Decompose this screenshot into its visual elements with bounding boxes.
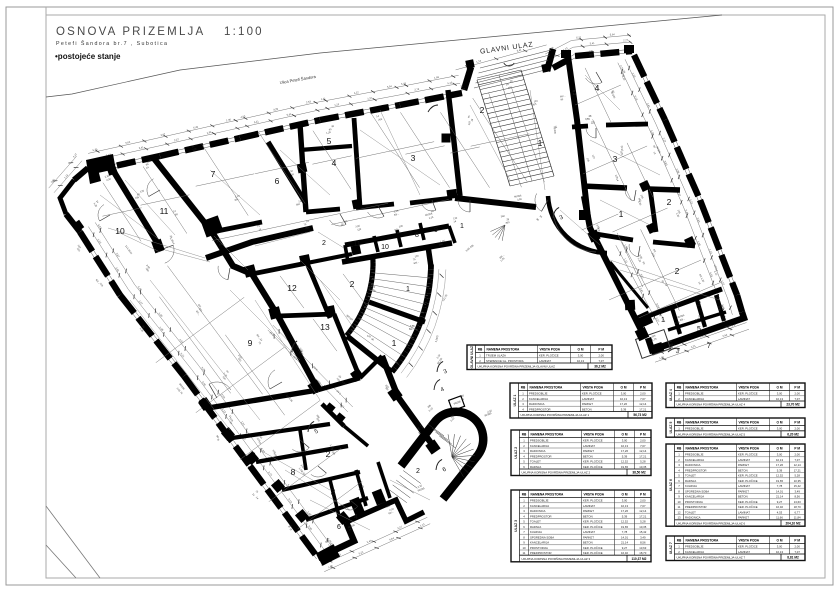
svg-text:6: 6 [722, 316, 726, 323]
svg-text:BETON: BETON [583, 514, 593, 518]
svg-text:16,40: 16,40 [776, 505, 783, 509]
svg-text:3,00: 3,00 [621, 392, 627, 396]
svg-text:P M: P M [794, 538, 800, 542]
svg-text:2: 2 [675, 266, 680, 276]
svg-text:18,70: 18,70 [794, 505, 801, 509]
svg-text:LAMINAT: LAMINAT [539, 359, 551, 363]
svg-text:3,00: 3,00 [622, 499, 628, 503]
svg-text:15,42: 15,42 [639, 530, 646, 534]
svg-text:13,63: 13,63 [794, 500, 801, 504]
svg-text:RB: RB [522, 492, 527, 496]
svg-text:7: 7 [707, 343, 711, 350]
svg-text:VRSTA PODA: VRSTA PODA [584, 432, 605, 436]
svg-text:KANCELARIJA: KANCELARIJA [685, 495, 704, 499]
svg-text:NAMENA PROSTORA: NAMENA PROSTORA [531, 432, 564, 436]
svg-text:NAMENA PROSTORA: NAMENA PROSTORA [531, 492, 564, 496]
svg-text:12,52: 12,52 [621, 460, 628, 464]
svg-text:2: 2 [326, 449, 331, 459]
svg-text:7,07: 7,07 [794, 550, 800, 554]
svg-text:ULAZ 2: ULAZ 2 [514, 447, 518, 459]
svg-text:PREDSOBLJE: PREDSOBLJE [685, 453, 704, 457]
svg-text:P M: P M [794, 385, 800, 389]
svg-text:2,00: 2,00 [640, 439, 646, 443]
svg-text:7,07: 7,07 [794, 458, 800, 462]
svg-text:NAMENA PROSTORA: NAMENA PROSTORA [686, 538, 719, 542]
svg-text:LAMINAT: LAMINAT [582, 397, 594, 401]
svg-text:2,00: 2,00 [640, 499, 646, 503]
svg-text:10: 10 [677, 500, 681, 504]
svg-text:ULAZ 1: ULAZ 1 [513, 394, 517, 406]
svg-text:18,70: 18,70 [639, 551, 646, 555]
svg-text:KANCELARIJA: KANCELARIJA [685, 550, 704, 554]
svg-text:13: 13 [320, 322, 330, 332]
svg-text:1:100: 1:100 [224, 26, 264, 38]
svg-text:VRSTA PODA: VRSTA PODA [584, 492, 605, 496]
svg-text:2: 2 [416, 468, 420, 475]
svg-text:21,14: 21,14 [776, 495, 783, 499]
svg-text:5,28: 5,28 [640, 520, 646, 524]
svg-text:LAMINAT: LAMINAT [738, 397, 750, 401]
svg-text:7,07: 7,07 [794, 397, 800, 401]
svg-text:2: 2 [667, 197, 672, 207]
svg-text:4,53: 4,53 [777, 510, 783, 514]
svg-text:10,13: 10,13 [621, 504, 628, 508]
svg-text:KER. PLOČICE: KER. PLOČICE [738, 499, 758, 504]
svg-text:12,52: 12,52 [776, 474, 783, 478]
svg-text:13,63: 13,63 [639, 546, 646, 550]
svg-text:10: 10 [522, 546, 526, 550]
svg-text:PARKET: PARKET [738, 463, 749, 467]
svg-text:12: 12 [287, 283, 297, 293]
svg-text:1: 1 [619, 209, 624, 219]
svg-text:12,14: 12,14 [639, 449, 646, 453]
svg-text:9,27: 9,27 [777, 500, 783, 504]
svg-text:3: 3 [697, 301, 701, 308]
svg-text:1: 1 [406, 286, 410, 293]
svg-text:RADNJA: RADNJA [530, 525, 541, 529]
svg-text:PARKET: PARKET [738, 489, 749, 493]
svg-text:VRSTA PODA: VRSTA PODA [583, 385, 604, 389]
svg-text:3,00: 3,00 [622, 439, 628, 443]
svg-text:KANCELARIJA: KANCELARIJA [685, 397, 704, 401]
svg-text:KER. PLOČICE: KER. PLOČICE [738, 504, 758, 509]
svg-text:10,13: 10,13 [621, 444, 628, 448]
svg-text:11: 11 [160, 206, 169, 216]
svg-text:P M: P M [640, 385, 646, 389]
svg-text:VRSTA PODA: VRSTA PODA [739, 538, 760, 542]
svg-text:PREDSOBLJE: PREDSOBLJE [530, 499, 549, 503]
svg-text:VRSTA PODA: VRSTA PODA [540, 347, 561, 351]
svg-text:5,28: 5,28 [794, 474, 800, 478]
svg-text:6: 6 [275, 176, 280, 186]
svg-text:KER. PLOČICE: KER. PLOČICE [583, 550, 603, 555]
svg-text:10,35: 10,35 [639, 465, 646, 469]
svg-text:16,40: 16,40 [621, 551, 628, 555]
svg-text:9,27: 9,27 [622, 546, 628, 550]
svg-text:BETON: BETON [583, 454, 593, 458]
svg-text:BETON: BETON [582, 407, 592, 411]
svg-text:5,21: 5,21 [576, 36, 582, 39]
svg-text:TOALET: TOALET [530, 460, 541, 464]
svg-text:17,21: 17,21 [639, 514, 646, 518]
svg-text:1: 1 [460, 223, 464, 230]
svg-text:56,73 M2: 56,73 M2 [633, 413, 647, 417]
svg-text:4: 4 [354, 514, 358, 521]
svg-text:O M: O M [577, 347, 583, 351]
svg-text:O M: O M [621, 432, 627, 436]
svg-text:5,39: 5,39 [777, 468, 783, 472]
svg-text:PREDPROSTOR: PREDPROSTOR [685, 505, 707, 509]
svg-text:KER. PLOČICE: KER. PLOČICE [583, 519, 603, 524]
svg-text:TRIJEM ULAZA: TRIJEM ULAZA [486, 354, 506, 358]
svg-text:10,13: 10,13 [776, 550, 783, 554]
svg-text:PREDSOBLJE: PREDSOBLJE [685, 545, 704, 549]
svg-text:7,07: 7,07 [640, 397, 646, 401]
svg-text:KER. PLOČICE: KER. PLOČICE [738, 391, 758, 396]
svg-text:13: 13 [677, 516, 681, 520]
svg-text:4: 4 [332, 158, 337, 168]
svg-text:60/...: 60/... [409, 328, 415, 331]
svg-text:10,13: 10,13 [776, 458, 783, 462]
svg-text:11,66: 11,66 [776, 516, 783, 520]
svg-text:3,55: 3,55 [585, 118, 590, 121]
svg-text:10,13: 10,13 [776, 397, 783, 401]
svg-text:ULAZ 3: ULAZ 3 [514, 520, 518, 532]
svg-text:KER. PLOČICE: KER. PLOČICE [583, 464, 603, 469]
svg-text:19,65: 19,65 [621, 525, 628, 529]
svg-text:LAMINAT: LAMINAT [738, 510, 750, 514]
svg-text:5,39: 5,39 [621, 407, 627, 411]
svg-text:12,14: 12,14 [794, 463, 801, 467]
svg-text:17,26: 17,26 [621, 449, 628, 453]
svg-text:3,41: 3,41 [590, 42, 596, 45]
svg-text:7,78: 7,78 [777, 484, 783, 488]
svg-text:110,37 M2: 110,37 M2 [632, 557, 647, 561]
svg-text:KER. PLOČICE: KER. PLOČICE [738, 478, 758, 483]
svg-text:PARKET: PARKET [583, 449, 594, 453]
svg-text:UKUPNA KORISNA POVRŠINA PRIZEM: UKUPNA KORISNA POVRŠINA PRIZEMLJA-ULAZ 3 [522, 556, 591, 561]
svg-text:6,20 M2: 6,20 M2 [787, 432, 799, 436]
svg-text:UKUPNA KORISNA POVRŠINA PRIZEM: UKUPNA KORISNA POVRŠINA PRIZEMLJA-ULAZ 4 [677, 402, 746, 407]
svg-text:KER. PLOČICE: KER. PLOČICE [583, 524, 603, 529]
svg-text:PREDPROSTOR: PREDPROSTOR [529, 407, 551, 411]
svg-text:PREDSOBLJE: PREDSOBLJE [685, 392, 704, 396]
svg-text:KER. PLOČICE: KER. PLOČICE [738, 473, 758, 478]
svg-text:LAMINAT: LAMINAT [738, 458, 750, 462]
svg-text:3: 3 [411, 153, 416, 163]
svg-text:8,56: 8,56 [640, 541, 646, 545]
svg-text:NAMENA PROSTORA: NAMENA PROSTORA [686, 385, 719, 389]
svg-text:NAMENA PROSTORA: NAMENA PROSTORA [686, 420, 719, 424]
svg-text:1: 1 [661, 317, 665, 324]
svg-text:VRSTA PODA: VRSTA PODA [739, 420, 760, 424]
svg-text:36,2 M2: 36,2 M2 [594, 365, 606, 369]
svg-text:5,39: 5,39 [622, 454, 628, 458]
svg-text:O M: O M [621, 492, 627, 496]
svg-text:SPOREDNA SOBA: SPOREDNA SOBA [685, 489, 709, 493]
svg-text:21,14: 21,14 [621, 541, 628, 545]
svg-text:TOALET: TOALET [530, 520, 541, 524]
svg-text:PREDPROSTOR: PREDPROSTOR [685, 468, 707, 472]
svg-text:NAMENA PROSTORA: NAMENA PROSTORA [686, 446, 719, 450]
svg-text:UKUPNA KORISNA POVRŠINA PRIZEM: UKUPNA KORISNA POVRŠINA PRIZEMLJA-ULAZ 7 [677, 555, 746, 560]
svg-text:LAMINAT: LAMINAT [583, 444, 595, 448]
svg-text:RADIONICA: RADIONICA [529, 402, 545, 406]
svg-text:2,00: 2,00 [598, 354, 604, 358]
svg-text:PREDSOBLJE: PREDSOBLJE [530, 439, 549, 443]
svg-text:15,42: 15,42 [794, 484, 801, 488]
svg-text:10,35: 10,35 [794, 479, 801, 483]
svg-text:PREDPROSTOR: PREDPROSTOR [530, 514, 552, 518]
svg-text:120: 120 [591, 121, 596, 124]
svg-text:10,13: 10,13 [620, 397, 627, 401]
svg-text:10,13: 10,13 [577, 359, 584, 363]
svg-text:4: 4 [716, 294, 720, 301]
svg-text:RB: RB [677, 385, 682, 389]
svg-text:PREDPROSTOR: PREDPROSTOR [530, 454, 552, 458]
svg-text:BETON: BETON [583, 541, 593, 545]
svg-text:17,26: 17,26 [776, 463, 783, 467]
svg-text:7,07: 7,07 [598, 359, 604, 363]
svg-text:7: 7 [211, 169, 216, 179]
svg-text:23,70 M2: 23,70 M2 [786, 403, 800, 407]
svg-text:9: 9 [434, 227, 438, 234]
svg-text:O M: O M [620, 385, 626, 389]
svg-text:VRSTA PODA: VRSTA PODA [739, 446, 760, 450]
svg-text:P M: P M [794, 446, 800, 450]
svg-text:10: 10 [115, 226, 125, 236]
svg-text:ULAZ 6: ULAZ 6 [669, 479, 673, 491]
svg-text:LAMINAT: LAMINAT [738, 484, 750, 488]
svg-text:17,26: 17,26 [621, 509, 628, 513]
svg-text:2: 2 [350, 279, 355, 289]
svg-text:17,26: 17,26 [620, 402, 627, 406]
svg-text:RB: RB [677, 538, 682, 542]
svg-text:3: 3 [331, 487, 336, 497]
svg-text:OSNOVA PRIZEMLJA: OSNOVA PRIZEMLJA [56, 26, 205, 38]
svg-text:3: 3 [613, 154, 618, 164]
svg-text:PREDPROSTOR: PREDPROSTOR [530, 551, 552, 555]
svg-text:RB: RB [522, 432, 527, 436]
svg-text:KER. PLOČICE: KER. PLOČICE [738, 452, 758, 457]
svg-text:17,21: 17,21 [794, 468, 801, 472]
svg-text:2,00: 2,00 [794, 545, 800, 549]
svg-text:•postojeće stanje: •postojeće stanje [55, 52, 121, 61]
svg-text:O M: O M [776, 385, 782, 389]
svg-text:1: 1 [538, 138, 543, 148]
svg-text:2: 2 [322, 240, 326, 247]
svg-text:O M: O M [776, 538, 782, 542]
svg-text:5,39: 5,39 [622, 514, 628, 518]
svg-text:BETON: BETON [738, 468, 748, 472]
svg-text:KANCELARIJA: KANCELARIJA [530, 504, 549, 508]
svg-text:STEPENICE GL. PROSTORA: STEPENICE GL. PROSTORA [486, 359, 524, 363]
svg-text:UKUPNA KORISNA POVRŠINA PRIZEM: UKUPNA KORISNA POVRŠINA PRIZEMLJA-ULAZ 1 [521, 412, 590, 417]
svg-text:VRSTA PODA: VRSTA PODA [739, 385, 760, 389]
svg-text:TOALET: TOALET [685, 510, 696, 514]
svg-text:P M: P M [640, 492, 646, 496]
svg-text:3,00: 3,00 [777, 392, 783, 396]
svg-text:11: 11 [678, 505, 681, 509]
svg-text:O M: O M [776, 420, 782, 424]
svg-text:2,00: 2,00 [794, 453, 800, 457]
svg-text:KER. PLOČICE: KER. PLOČICE [582, 391, 602, 396]
svg-text:RB: RB [677, 420, 682, 424]
svg-text:PROSTORIJA: PROSTORIJA [530, 546, 548, 550]
svg-text:PROSTORIJA: PROSTORIJA [685, 500, 703, 504]
svg-text:RADIONICA: RADIONICA [685, 463, 701, 467]
svg-text:19,65: 19,65 [621, 465, 628, 469]
svg-text:8: 8 [291, 467, 296, 477]
svg-text:O M: O M [776, 446, 782, 450]
svg-text:P M: P M [598, 347, 604, 351]
svg-text:3,00: 3,00 [777, 453, 783, 457]
svg-text:5: 5 [697, 326, 701, 333]
svg-text:7,78: 7,78 [622, 530, 628, 534]
svg-text:KANCELARIJA: KANCELARIJA [530, 444, 549, 448]
svg-text:38,50 M2: 38,50 M2 [632, 471, 646, 475]
svg-text:P M: P M [640, 432, 646, 436]
svg-text:TOALET: TOALET [685, 474, 696, 478]
svg-text:3,49: 3,49 [640, 535, 646, 539]
svg-text:1: 1 [392, 338, 397, 348]
svg-text:KER. PLOČICE: KER. PLOČICE [738, 544, 758, 549]
svg-text:LAMINAT: LAMINAT [738, 550, 750, 554]
svg-text:UKUPNA KORISNA POVRŠINA PRIZEM: UKUPNA KORISNA POVRŠINA PRIZEMLJA-ULAZ 5 [677, 431, 746, 436]
svg-text:5,28: 5,28 [640, 460, 646, 464]
svg-text:11: 11 [523, 551, 526, 555]
svg-text:3,00: 3,00 [777, 545, 783, 549]
svg-text:12,14: 12,14 [639, 402, 646, 406]
svg-text:LAMINAT: LAMINAT [583, 504, 595, 508]
svg-text:7,07: 7,07 [640, 444, 646, 448]
svg-text:UKUPNA KORISNA POVRŠINA PRIZEM: UKUPNA KORISNA POVRŠINA PRIZEMLJA-GLAVNI… [478, 364, 556, 369]
svg-text:UKUPNA KORISNA POVRŠINA PRIZEM: UKUPNA KORISNA POVRŠINA PRIZEMLJA-ULAZ 6 [677, 521, 746, 526]
svg-text:ULAZ 5: ULAZ 5 [669, 422, 673, 434]
svg-text:8: 8 [415, 232, 419, 239]
svg-text:7,07: 7,07 [640, 504, 646, 508]
svg-text:12: 12 [677, 510, 681, 514]
svg-text:KER. PLOČICE: KER. PLOČICE [738, 426, 758, 431]
svg-text:10: 10 [381, 244, 389, 251]
svg-text:GLAVNI ULAZ: GLAVNI ULAZ [470, 346, 474, 369]
svg-text:RB: RB [677, 446, 682, 450]
svg-text:PARKET: PARKET [582, 402, 593, 406]
svg-text:2,27: 2,27 [623, 39, 629, 42]
svg-text:ULAZ 4: ULAZ 4 [669, 389, 673, 401]
svg-text:204,10 M2: 204,10 M2 [785, 522, 800, 526]
svg-text:14,01: 14,01 [621, 535, 628, 539]
svg-text:4: 4 [595, 83, 600, 93]
svg-text:KER. PLOČICE: KER. PLOČICE [583, 459, 603, 464]
svg-text:SPOREDNA SOBA: SPOREDNA SOBA [530, 535, 554, 539]
svg-text:Petefi Šandora br.7 , Subotica: Petefi Šandora br.7 , Subotica [56, 40, 168, 47]
svg-text:KANCELARIJA: KANCELARIJA [685, 458, 704, 462]
svg-text:12,14: 12,14 [639, 509, 646, 513]
svg-text:NAMENA PROSTORA: NAMENA PROSTORA [530, 385, 563, 389]
svg-text:2,00: 2,00 [640, 392, 646, 396]
svg-text:BETON: BETON [738, 495, 748, 499]
svg-text:ULAZ 7: ULAZ 7 [669, 542, 673, 554]
svg-text:RADNJA: RADNJA [685, 479, 696, 483]
svg-text:PREDSOBLJE: PREDSOBLJE [685, 427, 704, 431]
svg-text:17,21: 17,21 [639, 407, 646, 411]
svg-text:RADIONICA: RADIONICA [530, 449, 546, 453]
svg-text:KUHINJA: KUHINJA [685, 484, 697, 488]
svg-text:3,00: 3,00 [777, 427, 783, 431]
svg-text:KER. PLOČICE: KER. PLOČICE [583, 498, 603, 503]
svg-text:LAMINAT: LAMINAT [583, 530, 595, 534]
svg-text:3,00: 3,00 [578, 354, 584, 358]
svg-text:8,81 M2: 8,81 M2 [787, 556, 799, 560]
svg-text:RB: RB [521, 385, 526, 389]
svg-text:10,35: 10,35 [639, 525, 646, 529]
svg-text:NAMENA PROSTORA: NAMENA PROSTORA [487, 347, 520, 351]
svg-text:PREDSOBLJE: PREDSOBLJE [529, 392, 548, 396]
svg-text:PARKET: PARKET [738, 516, 749, 520]
svg-text:KER. PLOČICE: KER. PLOČICE [539, 353, 559, 358]
svg-text:19,65: 19,65 [776, 479, 783, 483]
svg-text:RB: RB [478, 347, 483, 351]
svg-text:8,56: 8,56 [794, 495, 800, 499]
svg-text:PARKET: PARKET [583, 535, 594, 539]
svg-text:2,00: 2,00 [794, 427, 800, 431]
svg-text:KANCELARIJA: KANCELARIJA [530, 541, 549, 545]
svg-text:RADIONICA: RADIONICA [530, 509, 546, 513]
svg-text:KUHINJA: KUHINJA [530, 530, 542, 534]
svg-text:KANCELARIJA: KANCELARIJA [529, 397, 548, 401]
svg-text:17,21: 17,21 [639, 454, 646, 458]
svg-text:11,84: 11,84 [794, 516, 801, 520]
svg-text:12,52: 12,52 [621, 520, 628, 524]
svg-text:5,64: 5,64 [610, 33, 616, 36]
svg-text:RADIONICA: RADIONICA [685, 516, 701, 520]
svg-text:PARKET: PARKET [583, 509, 594, 513]
svg-text:11: 11 [353, 241, 360, 248]
svg-text:P M: P M [794, 420, 800, 424]
svg-text:RADNJA: RADNJA [530, 465, 541, 469]
svg-text:KER. PLOČICE: KER. PLOČICE [583, 545, 603, 550]
svg-text:KER. PLOČICE: KER. PLOČICE [583, 438, 603, 443]
svg-text:2,00: 2,00 [794, 392, 800, 396]
svg-text:6: 6 [337, 524, 341, 531]
svg-text:6,77: 6,77 [794, 510, 800, 514]
svg-text:2: 2 [480, 105, 485, 115]
svg-text:UKUPNA KORISNA POVRŠINA PRIZEM: UKUPNA KORISNA POVRŠINA PRIZEMLJA-ULAZ 2 [522, 470, 591, 475]
svg-text:3,49: 3,49 [794, 489, 800, 493]
svg-text:5: 5 [327, 136, 332, 146]
svg-text:9: 9 [248, 338, 253, 348]
svg-text:14,01: 14,01 [776, 489, 783, 493]
